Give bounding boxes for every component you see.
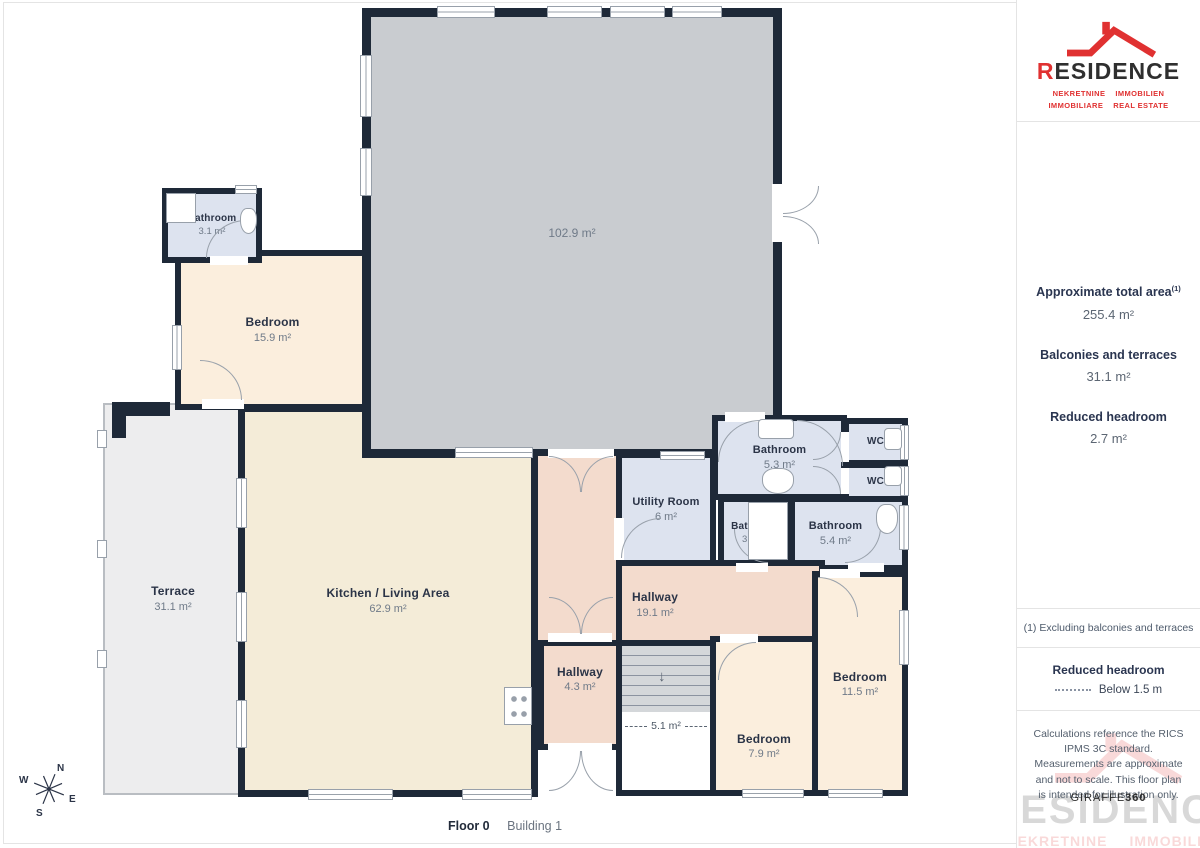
toilet bbox=[240, 208, 257, 234]
room-name: Kitchen / Living Area bbox=[326, 585, 449, 601]
brand-taglines: NEKRETNINEIMMOBILIEN IMMOBILIAREREAL EST… bbox=[1048, 88, 1168, 111]
door-arc bbox=[549, 751, 581, 791]
room-large: 102.9 m² bbox=[362, 8, 782, 458]
sink bbox=[884, 428, 902, 450]
room-name: Bedroom bbox=[833, 669, 887, 685]
brand-logo: RESIDENCE NEKRETNINEIMMOBILIEN IMMOBILIA… bbox=[1017, 0, 1200, 122]
window bbox=[308, 789, 393, 800]
window bbox=[236, 700, 247, 748]
room-area: 31.1 m² bbox=[151, 600, 195, 615]
room-name: Bedroom bbox=[245, 314, 299, 330]
compass-w: W bbox=[19, 775, 29, 786]
sink bbox=[884, 466, 902, 486]
window bbox=[660, 451, 705, 460]
window bbox=[742, 789, 804, 798]
stat-value: 2.7 m² bbox=[1050, 431, 1167, 446]
wall-stub bbox=[122, 402, 170, 416]
room-area: 62.9 m² bbox=[326, 602, 449, 617]
stat-reduced-headroom: Reduced headroom 2.7 m² bbox=[1050, 410, 1167, 446]
sink bbox=[758, 419, 794, 439]
room-label: Bedroom 15.9 m² bbox=[245, 314, 299, 345]
tagline: NEKRETNINE bbox=[1053, 88, 1106, 99]
room-name: Hallway bbox=[632, 589, 678, 605]
stat-label: Reduced headroom bbox=[1050, 410, 1167, 424]
toilet bbox=[876, 504, 898, 534]
terrace-notch bbox=[97, 430, 107, 448]
room-hallway-entry: Hallway 4.3 m² bbox=[538, 640, 622, 750]
roof-icon bbox=[1053, 16, 1165, 58]
window bbox=[547, 6, 602, 18]
room-area: 11.5 m² bbox=[833, 685, 887, 700]
room-name: Utility Room bbox=[632, 495, 699, 510]
door-arc bbox=[783, 216, 819, 244]
compass-s: S bbox=[36, 808, 43, 819]
window bbox=[172, 325, 182, 370]
compass-rose: N E S W bbox=[16, 752, 82, 826]
room-label: 102.9 m² bbox=[548, 225, 595, 241]
stat-total-area: Approximate total area(1) 255.4 m² bbox=[1036, 284, 1181, 321]
room-label: Bedroom 7.9 m² bbox=[737, 731, 791, 762]
window bbox=[360, 55, 372, 117]
door-opening bbox=[820, 569, 860, 578]
room-label: Kitchen / Living Area 62.9 m² bbox=[326, 585, 449, 616]
room-label: Hallway 4.3 m² bbox=[557, 664, 603, 695]
building-number: Building 1 bbox=[507, 819, 562, 833]
room-label: Utility Room 6 m² bbox=[632, 495, 699, 525]
stat-label: Approximate total area bbox=[1036, 286, 1171, 300]
tagline: REAL ESTATE bbox=[1113, 100, 1168, 111]
window bbox=[672, 6, 722, 18]
window bbox=[828, 789, 883, 798]
room-label: Hallway 19.1 m² bbox=[632, 589, 678, 620]
stat-label: Balconies and terraces bbox=[1040, 348, 1177, 362]
room-name: Bedroom bbox=[737, 731, 791, 747]
room-name: Terrace bbox=[151, 583, 195, 599]
window bbox=[437, 6, 495, 18]
door-opening bbox=[548, 633, 612, 642]
tagline: IMMOBILIEN bbox=[1115, 88, 1164, 99]
room-label: Terrace 31.1 m² bbox=[151, 583, 195, 614]
floor-plan: Terrace 31.1 m² Kitchen / Living Area 62… bbox=[0, 0, 1010, 842]
legend-label: Below 1.5 m bbox=[1099, 684, 1162, 696]
floor-number: Floor 0 bbox=[448, 819, 490, 833]
room-name: WC bbox=[867, 435, 884, 449]
room-label: Bedroom 11.5 m² bbox=[833, 669, 887, 700]
stat-value: 255.4 m² bbox=[1036, 307, 1181, 322]
stair-direction-arrow: ↓ bbox=[658, 668, 666, 685]
legend-reduced-headroom: Reduced headroom Below 1.5 m bbox=[1017, 648, 1200, 711]
toilet bbox=[762, 468, 794, 494]
compass-e: E bbox=[69, 794, 76, 805]
door-opening bbox=[841, 468, 849, 494]
window bbox=[899, 505, 909, 550]
stair-treads bbox=[622, 646, 710, 710]
stat-balconies: Balconies and terraces 31.1 m² bbox=[1040, 348, 1177, 384]
room-area: 4.3 m² bbox=[557, 680, 603, 695]
room-name: WC bbox=[867, 475, 884, 489]
stat-value: 31.1 m² bbox=[1040, 369, 1177, 384]
door-opening bbox=[736, 563, 768, 572]
room-kitchen-living: Kitchen / Living Area 62.9 m² bbox=[238, 405, 538, 797]
room-terrace: Terrace 31.1 m² bbox=[103, 403, 243, 795]
room-area: 15.9 m² bbox=[245, 331, 299, 346]
shower bbox=[166, 193, 196, 223]
dashed-line bbox=[625, 726, 647, 727]
giraffe360-brand: GIRAFFE360 bbox=[1017, 792, 1200, 804]
room-area: 102.9 m² bbox=[548, 225, 595, 241]
disclaimer-section: RESIDENCE NEKRETNINEIMMOBILIEN IMMOBILIA… bbox=[1017, 711, 1200, 848]
door-opening bbox=[202, 399, 244, 409]
dashed-line bbox=[685, 726, 707, 727]
reduced-headroom-area: 5.1 m² bbox=[616, 720, 716, 732]
dotted-line-icon bbox=[1055, 689, 1091, 691]
window bbox=[610, 6, 665, 18]
terrace-notch bbox=[97, 540, 107, 558]
room-area: 19.1 m² bbox=[632, 606, 678, 621]
room-area: 7.9 m² bbox=[737, 747, 791, 762]
tagline: IMMOBILIARE bbox=[1048, 100, 1103, 111]
room-area: 5.1 m² bbox=[651, 720, 681, 732]
info-sidebar: RESIDENCE NEKRETNINEIMMOBILIEN IMMOBILIA… bbox=[1016, 0, 1200, 848]
terrace-notch bbox=[97, 650, 107, 668]
stove bbox=[504, 687, 532, 725]
floor-plan-page: Terrace 31.1 m² Kitchen / Living Area 62… bbox=[0, 0, 1200, 848]
legend-title: Reduced headroom bbox=[1052, 663, 1164, 677]
shower bbox=[748, 502, 788, 560]
door-opening bbox=[772, 184, 783, 242]
door-arc bbox=[783, 186, 819, 214]
window bbox=[455, 447, 533, 458]
room-name: Hallway bbox=[557, 664, 603, 680]
area-stats: Approximate total area(1) 255.4 m² Balco… bbox=[1017, 122, 1200, 609]
window bbox=[236, 592, 247, 642]
window bbox=[899, 610, 909, 665]
window bbox=[236, 478, 247, 528]
floor-label: Floor 0 Building 1 bbox=[0, 819, 1010, 833]
door-arc bbox=[581, 751, 613, 791]
window bbox=[235, 185, 257, 194]
compass-n: N bbox=[57, 763, 64, 774]
stat-footnote-marker: (1) bbox=[1172, 284, 1181, 293]
footnote: (1) Excluding balconies and terraces bbox=[1017, 609, 1200, 648]
window bbox=[462, 789, 532, 800]
window bbox=[360, 148, 372, 196]
brand-name: RESIDENCE bbox=[1037, 60, 1180, 83]
